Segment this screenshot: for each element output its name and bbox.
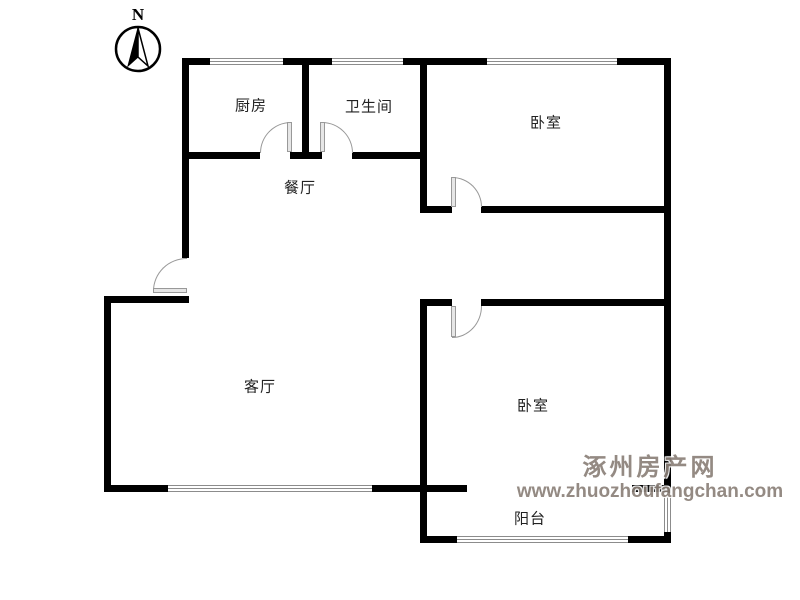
wall-west-lower	[104, 296, 111, 492]
watermark-site-url: www.zhuozhoufangchan.com	[505, 481, 795, 503]
bedroom-south-door-leaf	[451, 306, 456, 337]
wall-bathroom-bottom	[352, 152, 427, 159]
wall-balcony-east-stub	[664, 532, 671, 543]
bathroom-door-arc	[322, 122, 353, 153]
entry-door-leaf	[153, 288, 187, 293]
room-label-bathroom: 卫生间	[345, 96, 393, 117]
window-bedroom-north	[487, 58, 617, 65]
wall-balcony-bottom-a	[420, 536, 457, 543]
wall-kitchen-bathroom-divider	[302, 65, 309, 152]
bedroom-south-door-arc	[452, 306, 482, 338]
watermark-site-name: 涿州房产网	[505, 455, 795, 481]
room-label-living-room: 客厅	[244, 376, 276, 397]
compass: N	[108, 6, 168, 78]
bedroom-north-door-leaf	[451, 177, 456, 207]
wall-kitchen-bottom-b	[290, 152, 322, 159]
entry-door-arc	[153, 258, 187, 291]
room-label-kitchen: 厨房	[235, 95, 267, 116]
compass-needle-icon	[113, 24, 163, 74]
wall-living-bottom-a	[104, 485, 168, 492]
window-kitchen	[210, 58, 283, 65]
bedroom-north-door-arc	[452, 177, 482, 207]
window-living-room	[168, 485, 372, 492]
floor-plan-canvas: N 厨房 卫生间 餐厅 卧室	[0, 0, 800, 600]
wall-living-bottom-b	[372, 485, 467, 492]
wall-bathroom-east	[420, 65, 427, 213]
room-label-bedroom-north: 卧室	[530, 112, 562, 133]
wall-entry-jog	[104, 296, 189, 303]
wall-bedroom-north-bottom-a	[427, 206, 452, 213]
room-label-dining-room: 餐厅	[284, 177, 316, 198]
watermark: 涿州房产网 www.zhuozhoufangchan.com	[505, 455, 795, 503]
compass-north-label: N	[108, 6, 168, 24]
room-label-bedroom-south: 卧室	[517, 395, 549, 416]
wall-kitchen-bottom-a	[182, 152, 260, 159]
wall-bedroom-south-top-b	[481, 299, 664, 306]
wall-east	[664, 58, 671, 493]
window-balcony-south	[457, 536, 628, 543]
window-bathroom	[332, 58, 403, 65]
wall-bedroom-north-bottom-b	[481, 206, 671, 213]
room-label-balcony: 阳台	[514, 508, 546, 529]
bathroom-door-leaf	[320, 122, 325, 152]
wall-bedroom-south-west	[420, 299, 427, 543]
kitchen-door-leaf	[287, 122, 292, 152]
